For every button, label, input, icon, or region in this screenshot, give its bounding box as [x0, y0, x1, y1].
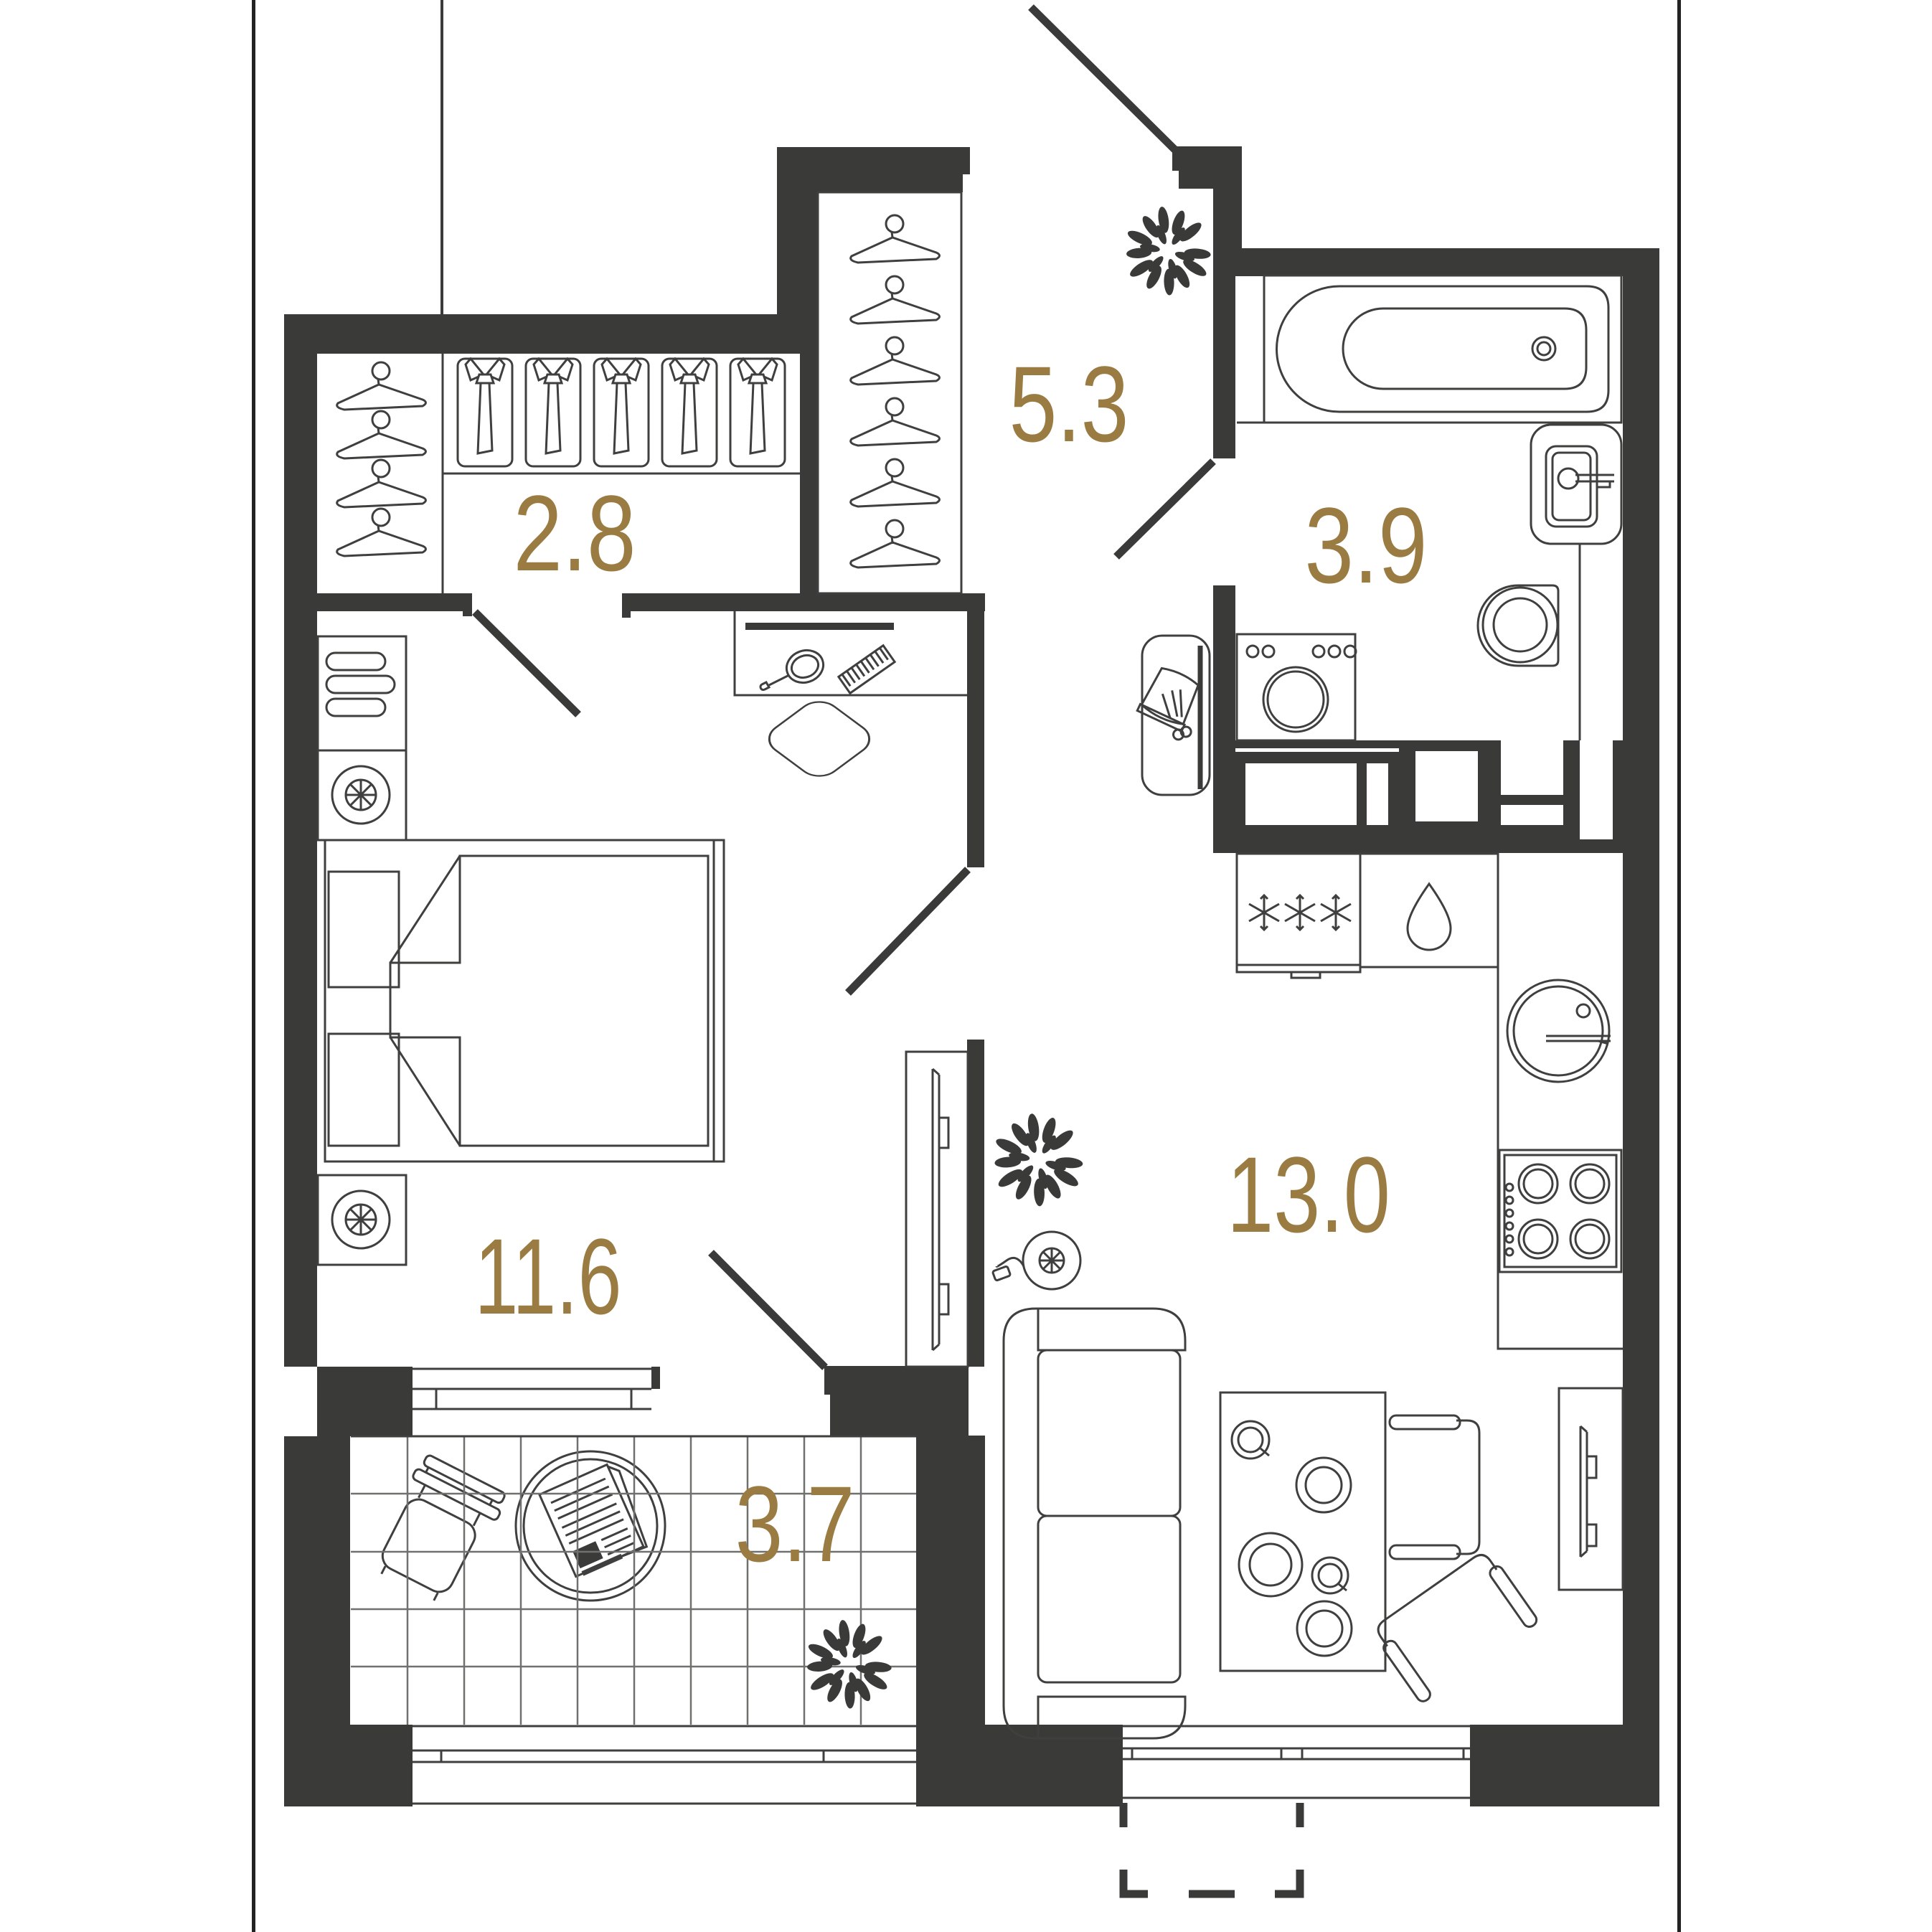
svg-text:13.0: 13.0: [1227, 1134, 1390, 1255]
svg-text:2.8: 2.8: [514, 473, 636, 593]
svg-text:5.3: 5.3: [1009, 344, 1129, 464]
svg-text:3.9: 3.9: [1305, 486, 1428, 605]
svg-text:3.7: 3.7: [735, 1464, 855, 1584]
svg-text:11.6: 11.6: [475, 1216, 622, 1337]
